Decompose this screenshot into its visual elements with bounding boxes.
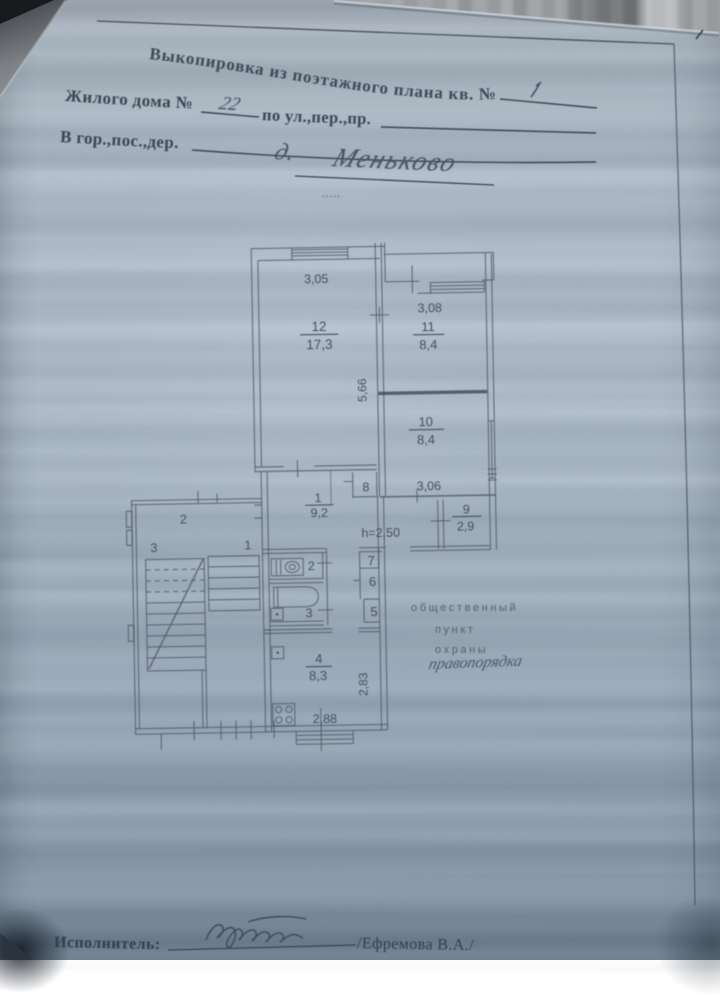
svg-text:7: 7 <box>367 553 374 568</box>
svg-text:д.: д. <box>271 139 301 166</box>
svg-text:общественный: общественный <box>411 602 518 614</box>
svg-text:/Ефремова В.А./: /Ефремова В.А./ <box>357 935 474 954</box>
svg-text:2,88: 2,88 <box>313 712 338 726</box>
svg-text:22: 22 <box>216 94 243 115</box>
svg-text:Меньково: Меньково <box>328 142 462 177</box>
svg-text:8,3: 8,3 <box>309 668 327 683</box>
svg-text:по ул.,пер.,пр.: по ул.,пер.,пр. <box>262 105 372 128</box>
svg-text:1: 1 <box>314 491 321 505</box>
svg-text:2,83: 2,83 <box>356 672 370 696</box>
svg-text:2: 2 <box>308 559 315 573</box>
svg-text:3,05: 3,05 <box>304 272 329 286</box>
svg-text:2,9: 2,9 <box>457 519 475 533</box>
svg-text:3: 3 <box>305 606 312 620</box>
svg-text:12: 12 <box>311 319 326 334</box>
svg-text:.....: ..... <box>322 188 341 200</box>
svg-text:9: 9 <box>463 502 470 516</box>
svg-text:h=2,50: h=2,50 <box>361 526 400 541</box>
svg-text:1: 1 <box>244 538 251 552</box>
svg-text:3,06: 3,06 <box>417 479 442 493</box>
svg-text:11: 11 <box>421 319 435 334</box>
svg-text:Жилого дома №: Жилого дома № <box>65 86 194 112</box>
svg-text:3: 3 <box>150 541 157 555</box>
svg-text:4: 4 <box>315 651 322 666</box>
svg-text:Выкопировка из поэтажного план: Выкопировка из поэтажного плана кв. № <box>149 44 497 104</box>
svg-text:правопорядка: правопорядка <box>427 652 524 673</box>
svg-text:6: 6 <box>369 574 376 589</box>
svg-text:8,4: 8,4 <box>419 337 437 352</box>
svg-text:пункт: пункт <box>435 624 476 636</box>
svg-text:5,66: 5,66 <box>355 378 369 402</box>
svg-text:8,4: 8,4 <box>417 432 435 447</box>
svg-text:10: 10 <box>418 414 433 429</box>
svg-text:9,2: 9,2 <box>310 506 328 520</box>
svg-text:В гор.,пос.,дер.: В гор.,пос.,дер. <box>60 127 179 152</box>
svg-text:5: 5 <box>370 604 377 619</box>
svg-text:2: 2 <box>180 512 187 526</box>
svg-text:17,3: 17,3 <box>306 337 333 352</box>
svg-text:3,08: 3,08 <box>417 301 442 315</box>
svg-text:8: 8 <box>362 480 369 494</box>
svg-text:Исполнитель:: Исполнитель: <box>54 934 161 953</box>
